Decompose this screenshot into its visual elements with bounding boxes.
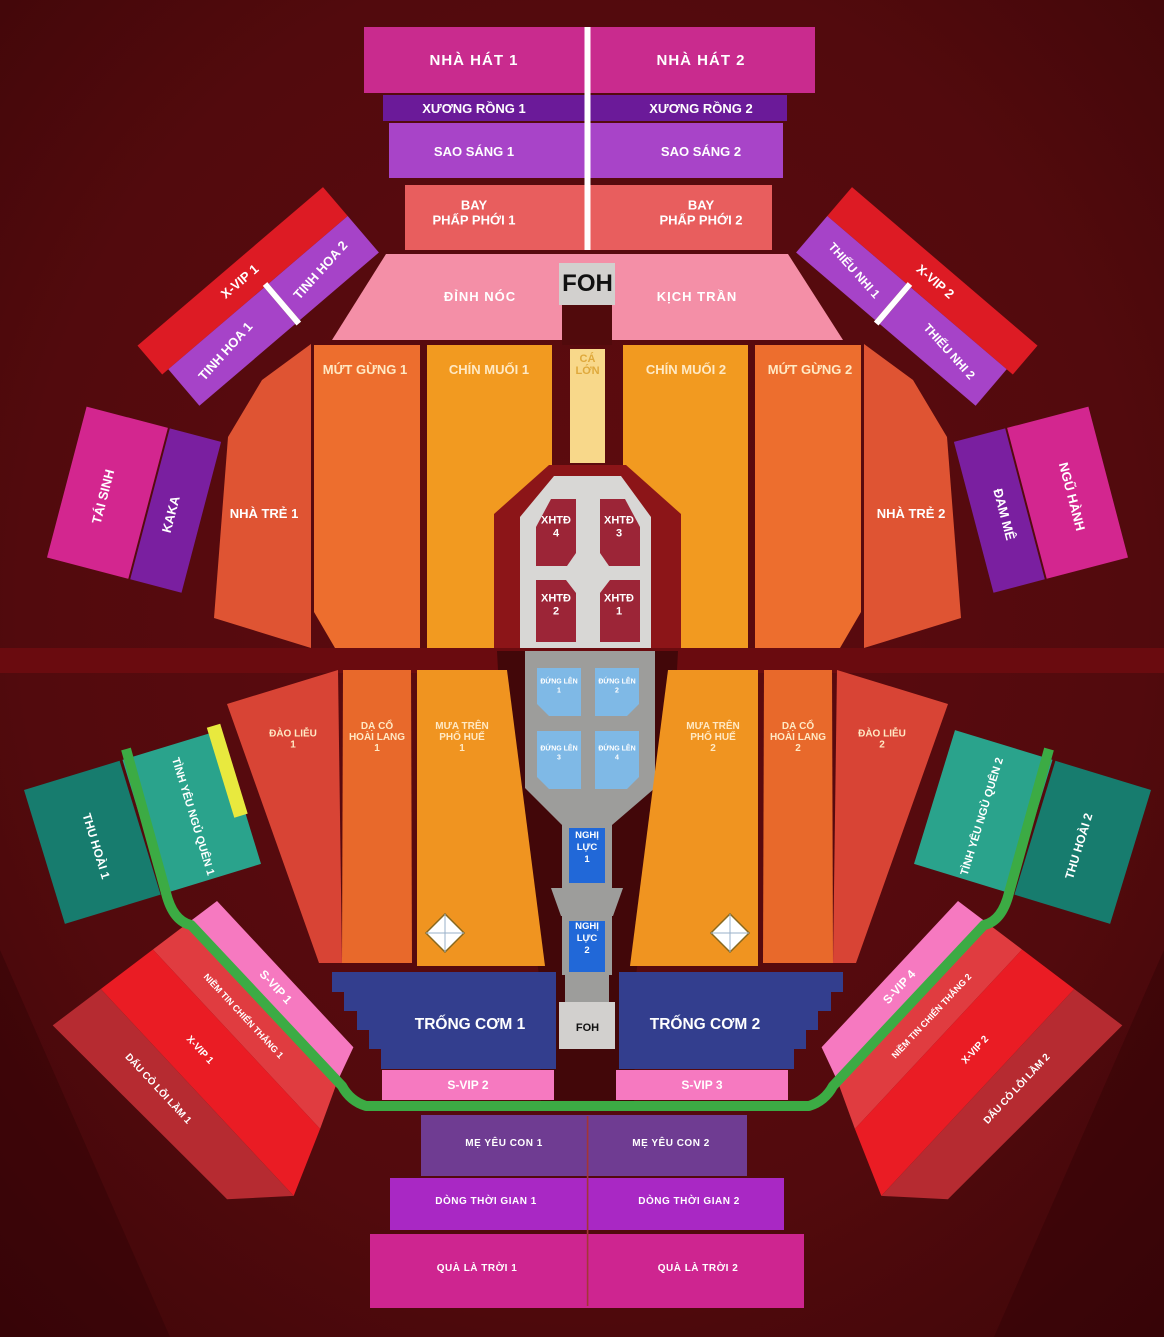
svg-text:NHÀ TRẺ 1: NHÀ TRẺ 1 (230, 506, 299, 521)
svg-text:TRỐNG CƠM 2: TRỐNG CƠM 2 (650, 1015, 761, 1033)
svg-text:QUÀ LÀ TRỜI 1: QUÀ LÀ TRỜI 1 (437, 1261, 518, 1274)
svg-text:XƯƠNG RỒNG 2: XƯƠNG RỒNG 2 (649, 101, 753, 116)
svg-text:QUÀ LÀ TRỜI 2: QUÀ LÀ TRỜI 2 (658, 1261, 739, 1274)
svg-text:TRỐNG CƠM 1: TRỐNG CƠM 1 (415, 1015, 526, 1033)
svg-text:NHÀ HÁT 1: NHÀ HÁT 1 (429, 52, 518, 69)
svg-text:MỨT GỪNG 2: MỨT GỪNG 2 (768, 362, 852, 377)
svg-text:S-VIP 2: S-VIP 2 (447, 1078, 488, 1092)
svg-text:S-VIP 3: S-VIP 3 (681, 1078, 722, 1092)
svg-text:CHÍN MUỐI 1: CHÍN MUỐI 1 (449, 362, 529, 377)
svg-text:DÒNG THỜI GIAN 1: DÒNG THỜI GIAN 1 (435, 1194, 537, 1207)
svg-text:FOH: FOH (576, 1022, 599, 1034)
svg-text:ĐỈNH NÓC: ĐỈNH NÓC (444, 289, 516, 304)
svg-text:MẸ YÊU CON 2: MẸ YÊU CON 2 (632, 1136, 710, 1149)
svg-text:KỊCH TRẦN: KỊCH TRẦN (657, 289, 738, 304)
svg-text:NHÀ TRẺ 2: NHÀ TRẺ 2 (877, 506, 946, 521)
svg-text:XƯƠNG RỒNG 1: XƯƠNG RỒNG 1 (422, 101, 526, 116)
svg-text:NHÀ HÁT 2: NHÀ HÁT 2 (656, 52, 745, 69)
svg-text:SAO SÁNG 1: SAO SÁNG 1 (434, 144, 514, 159)
svg-text:MỨT GỪNG 1: MỨT GỪNG 1 (323, 362, 407, 377)
svg-text:CHÍN MUỐI 2: CHÍN MUỐI 2 (646, 362, 726, 377)
svg-text:MẸ YÊU CON 1: MẸ YÊU CON 1 (465, 1136, 543, 1149)
svg-text:FOH: FOH (562, 270, 613, 297)
svg-text:DÒNG THỜI GIAN 2: DÒNG THỜI GIAN 2 (638, 1194, 740, 1207)
svg-text:SAO SÁNG 2: SAO SÁNG 2 (661, 144, 741, 159)
